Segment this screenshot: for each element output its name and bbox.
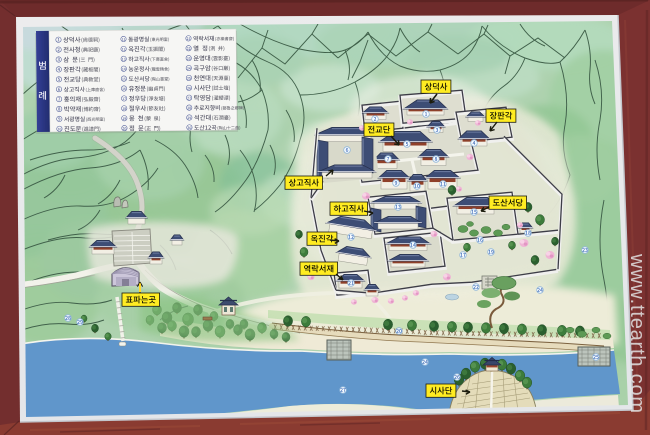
svg-text:www.ttearth.com: www.ttearth.com	[626, 253, 648, 414]
